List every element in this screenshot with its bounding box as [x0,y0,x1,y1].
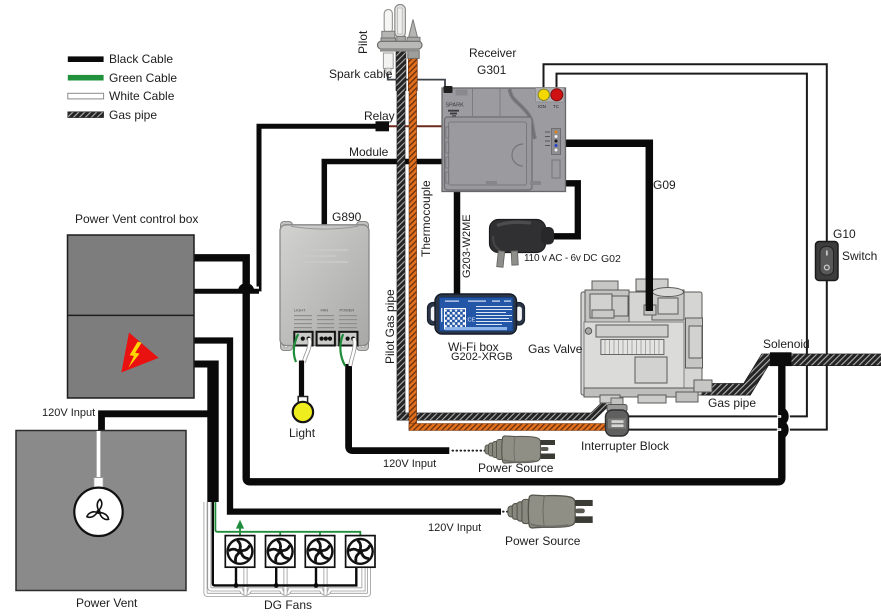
svg-text:CE: CE [468,318,476,324]
svg-text:SPARK: SPARK [446,103,465,109]
svg-text:FAN: FAN [321,308,329,313]
svg-text:TC: TC [553,104,560,109]
svg-text:IGN: IGN [538,104,546,109]
svg-text:LIGHT: LIGHT [294,308,306,313]
svg-text:POWER: POWER [340,308,355,313]
